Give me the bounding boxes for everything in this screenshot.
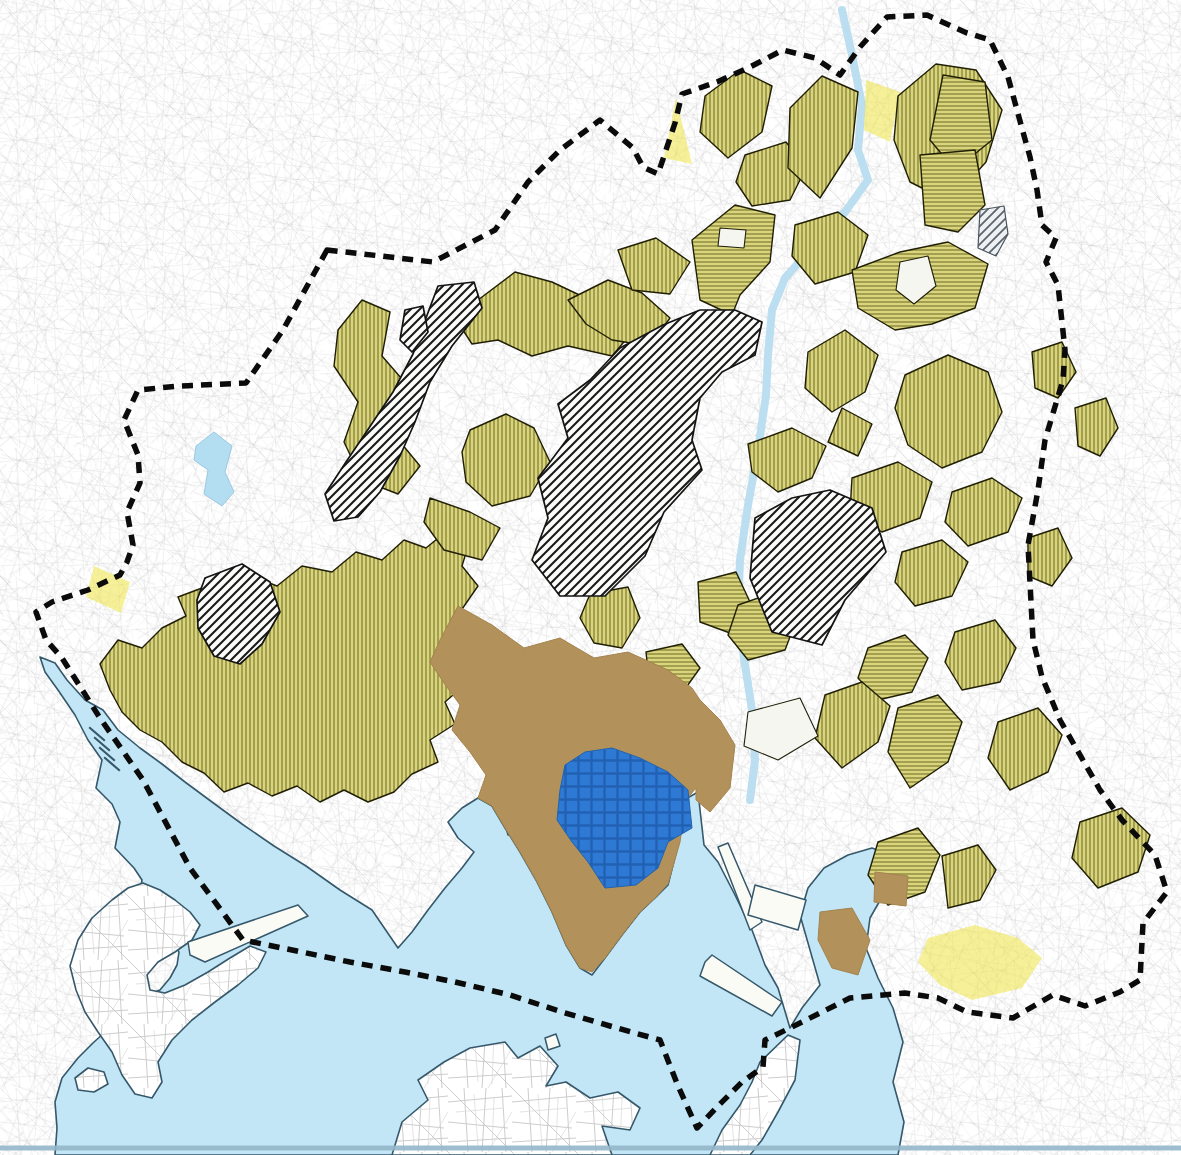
zoning-map[interactable] (0, 0, 1181, 1155)
map-svg[interactable] (0, 0, 1181, 1155)
brown-se-1 (874, 872, 908, 906)
hole-2 (718, 228, 746, 248)
